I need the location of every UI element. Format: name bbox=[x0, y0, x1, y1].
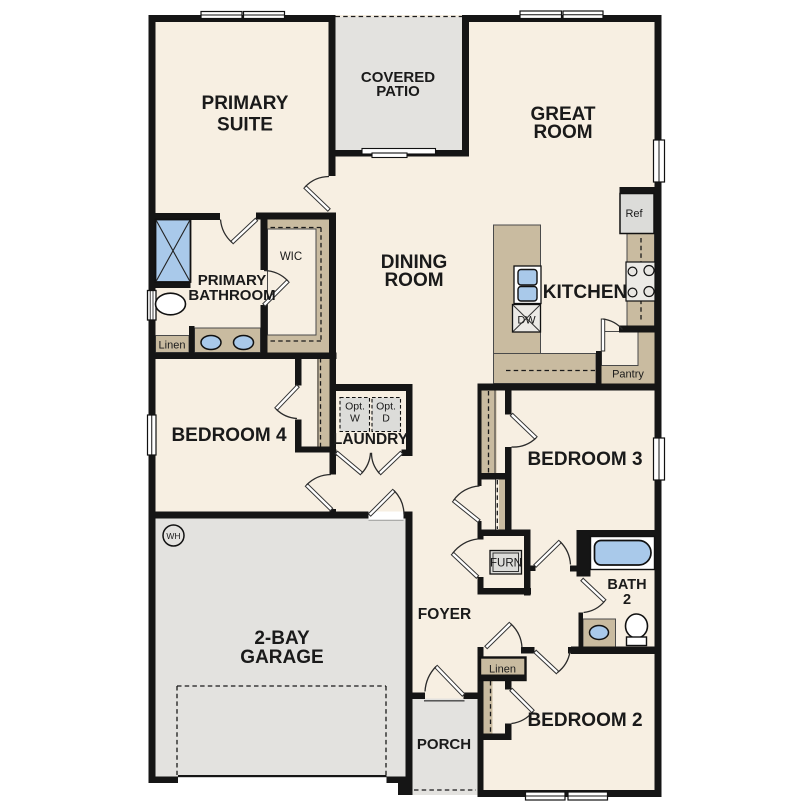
svg-text:WIC: WIC bbox=[280, 251, 302, 263]
svg-text:PRIMARY: PRIMARY bbox=[202, 93, 289, 114]
svg-text:PATIO: PATIO bbox=[376, 83, 420, 100]
svg-text:Opt.: Opt. bbox=[376, 401, 396, 413]
svg-text:D: D bbox=[382, 413, 390, 425]
svg-text:LAUNDRY: LAUNDRY bbox=[333, 431, 409, 448]
svg-text:SUITE: SUITE bbox=[217, 115, 273, 136]
svg-text:Ref: Ref bbox=[625, 208, 643, 220]
svg-text:BATH: BATH bbox=[607, 577, 646, 593]
svg-text:FOYER: FOYER bbox=[418, 606, 471, 623]
svg-text:BEDROOM 4: BEDROOM 4 bbox=[171, 425, 287, 446]
svg-text:BEDROOM 3: BEDROOM 3 bbox=[527, 449, 642, 470]
svg-text:ROOM: ROOM bbox=[533, 122, 592, 143]
svg-text:Linen: Linen bbox=[159, 340, 186, 352]
svg-text:DW: DW bbox=[517, 315, 536, 327]
svg-text:FURN: FURN bbox=[490, 558, 522, 570]
svg-text:2-BAY: 2-BAY bbox=[254, 628, 310, 649]
svg-text:Opt.: Opt. bbox=[345, 401, 365, 413]
svg-text:BATHROOM: BATHROOM bbox=[188, 287, 275, 304]
svg-text:W: W bbox=[350, 413, 360, 425]
svg-text:2: 2 bbox=[623, 592, 631, 608]
svg-text:BEDROOM 2: BEDROOM 2 bbox=[527, 710, 642, 731]
svg-text:Linen: Linen bbox=[489, 664, 516, 676]
svg-text:Pantry: Pantry bbox=[612, 369, 644, 381]
svg-text:WH: WH bbox=[166, 531, 180, 541]
svg-text:GARAGE: GARAGE bbox=[240, 647, 323, 668]
svg-text:PORCH: PORCH bbox=[417, 736, 471, 753]
svg-text:ROOM: ROOM bbox=[384, 270, 443, 291]
svg-text:KITCHEN: KITCHEN bbox=[543, 282, 627, 303]
